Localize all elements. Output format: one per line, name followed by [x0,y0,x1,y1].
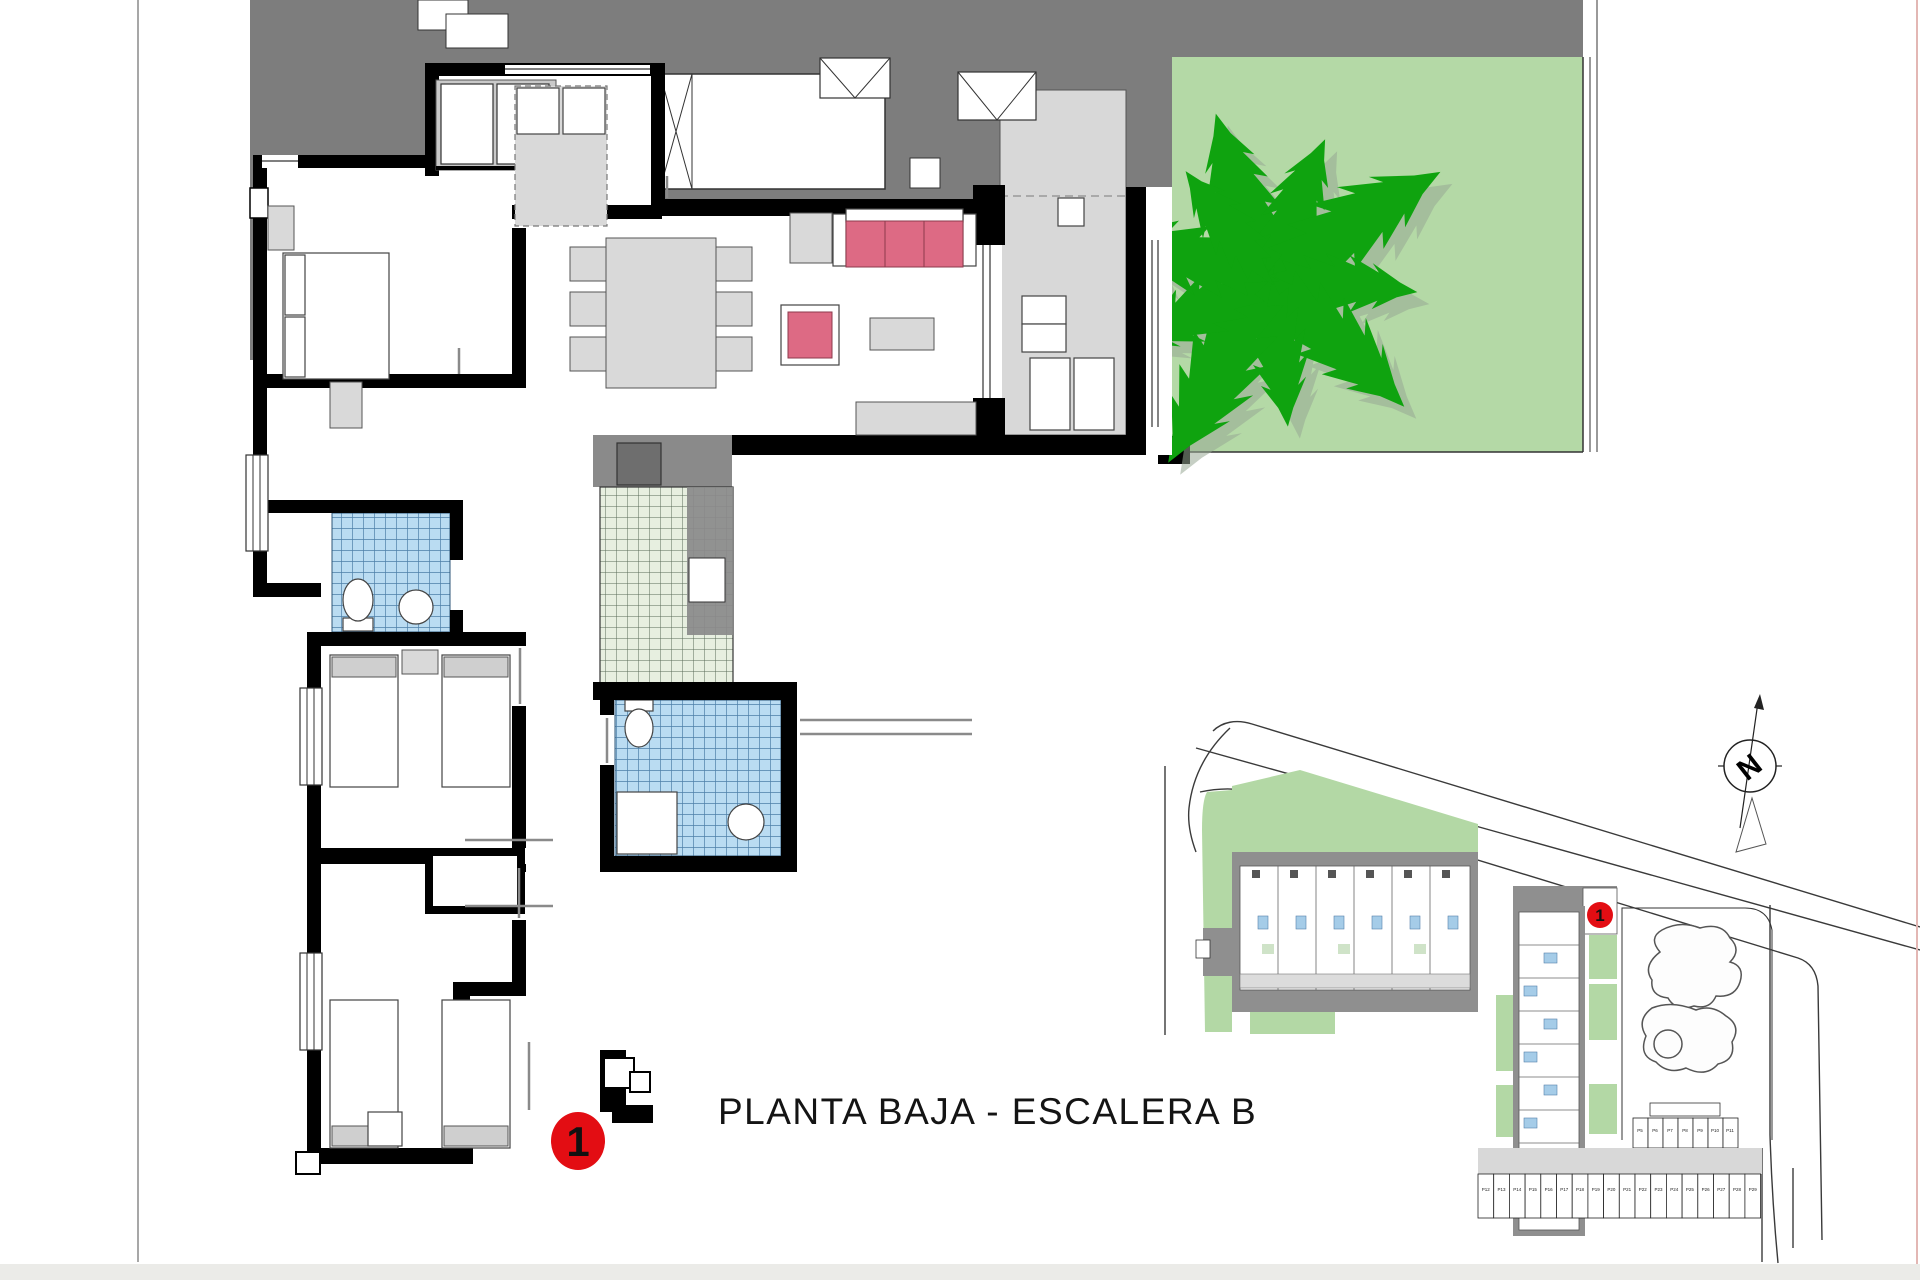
built-in-wardrobe [433,856,517,906]
bedroom-top-furniture [515,86,607,226]
parking-label: P12 [1482,1187,1491,1192]
parking-stall [1525,1174,1541,1218]
parking-label: P28 [1733,1187,1742,1192]
window [262,155,298,168]
terrace-skylight [910,158,940,188]
window [246,455,268,551]
window [300,688,322,785]
parking-label: P22 [1639,1187,1648,1192]
window [976,245,1002,398]
terrace-lounge-chair [1030,358,1070,430]
washbasin [728,804,764,840]
armchair [788,312,832,358]
parking-stall [1663,1118,1678,1148]
kitchen-cabinet [689,558,725,602]
sofa-armrest [963,214,976,266]
parking-row-lower: P12 P13 P14 P15 P16 P17 P18 P19 P20 P21 … [1478,1174,1761,1218]
terrace-lounge-chair [1074,358,1114,430]
pillow [285,317,305,377]
parking-stall [1723,1118,1738,1148]
terrace-vent-box [958,72,1036,120]
parking-stall [1693,1118,1708,1148]
parking-label: P8 [1682,1128,1688,1133]
nightstand [368,1112,402,1146]
parking-label: P16 [1545,1187,1554,1192]
site-unit-marker: 1 [1587,902,1613,928]
parking-stall [1682,1174,1698,1218]
kitchen-cooktop [617,443,661,485]
parking-stall [1604,1174,1620,1218]
pillow [563,88,605,134]
bathroom-2 [615,700,781,856]
window [300,953,322,1050]
east-window-strip [1146,187,1172,455]
terrace-shelf [1022,296,1066,324]
parking-stall [1541,1174,1557,1218]
parking-stall [1651,1174,1667,1218]
sofa-armrest [833,214,846,266]
shower [617,792,677,854]
site-walkway [1478,1148,1762,1174]
parking-label: P26 [1702,1187,1711,1192]
terrace-room-cabinet [1058,198,1084,226]
page-title: PLANTA BAJA - ESCALERA B [718,1091,1257,1132]
terrace-vent-box [820,58,890,98]
pillow [444,657,508,677]
parking-label: P23 [1654,1187,1663,1192]
toilet [625,709,653,747]
parking-label: P18 [1576,1187,1585,1192]
hall-closet [330,382,362,428]
coffee-table [870,318,934,350]
parking-label: P5 [1637,1128,1643,1133]
parking-stall [1619,1174,1635,1218]
nightstand [268,206,294,250]
bathroom-1 [332,513,450,632]
parking-label: P6 [1652,1128,1658,1133]
parking-label: P21 [1623,1187,1632,1192]
parking-label: P13 [1497,1187,1506,1192]
dining-set [570,238,752,388]
parking-label: P27 [1717,1187,1726,1192]
parking-label: P11 [1726,1128,1734,1133]
parking-label: P29 [1749,1187,1758,1192]
pillow [332,657,396,677]
parking-label: P19 [1592,1187,1601,1192]
parking-stall [1478,1174,1494,1218]
tv-cabinet [790,213,832,263]
parking-stall [1729,1174,1745,1218]
parking-stall [1635,1174,1651,1218]
parking-stall [1698,1174,1714,1218]
parking-label: P14 [1513,1187,1522,1192]
sofa [846,221,963,267]
parking-stall [1648,1118,1663,1148]
washbasin [399,590,433,624]
unit-marker-number: 1 [566,1118,589,1165]
site-unit-marker-number: 1 [1595,906,1604,925]
site-building-a [1196,852,1478,1012]
parking-stall [1678,1118,1693,1148]
pillow [285,255,305,315]
parking-label: P9 [1697,1128,1703,1133]
parking-label: P20 [1607,1187,1616,1192]
corner-pillar-niche [296,1152,320,1174]
parking-stall [1633,1118,1648,1148]
dining-chair [570,247,606,281]
parking-stall [1666,1174,1682,1218]
parking-label: P10 [1711,1128,1720,1133]
dining-chair [716,247,752,281]
sofa-back [846,209,963,222]
window [505,65,650,74]
parking-stall [1494,1174,1510,1218]
dining-table [606,238,716,388]
wall-niche [250,188,268,218]
scan-shadow-bottom [0,1264,1920,1280]
parking-stall [1745,1174,1761,1218]
parking-stall [1714,1174,1730,1218]
dining-chair [570,337,606,371]
parking-label: P7 [1667,1128,1673,1133]
parking-label: P17 [1560,1187,1569,1192]
entrance-door-block [630,1072,650,1092]
floorplan-page: 1 PLANTA BAJA - ESCALERA B [0,0,1920,1280]
kitchen [593,435,733,685]
parking-stall [1557,1174,1573,1218]
parking-label: P25 [1686,1187,1695,1192]
terrace-room [1000,90,1126,435]
parking-stall [1588,1174,1604,1218]
pillow [444,1126,508,1146]
pillow [517,88,559,134]
sideboard [856,402,976,435]
toilet [343,579,373,621]
terrace-shelf [1022,324,1066,352]
unit-marker: 1 [551,1112,605,1170]
nightstand [402,650,438,674]
parking-stall [1509,1174,1525,1218]
parking-label: P24 [1670,1187,1679,1192]
dining-chair [716,292,752,326]
parking-stall [1708,1118,1723,1148]
dining-chair [570,292,606,326]
parking-stall [1572,1174,1588,1218]
parking-label: P15 [1529,1187,1538,1192]
kitchen-counter [593,435,732,487]
dining-chair [716,337,752,371]
